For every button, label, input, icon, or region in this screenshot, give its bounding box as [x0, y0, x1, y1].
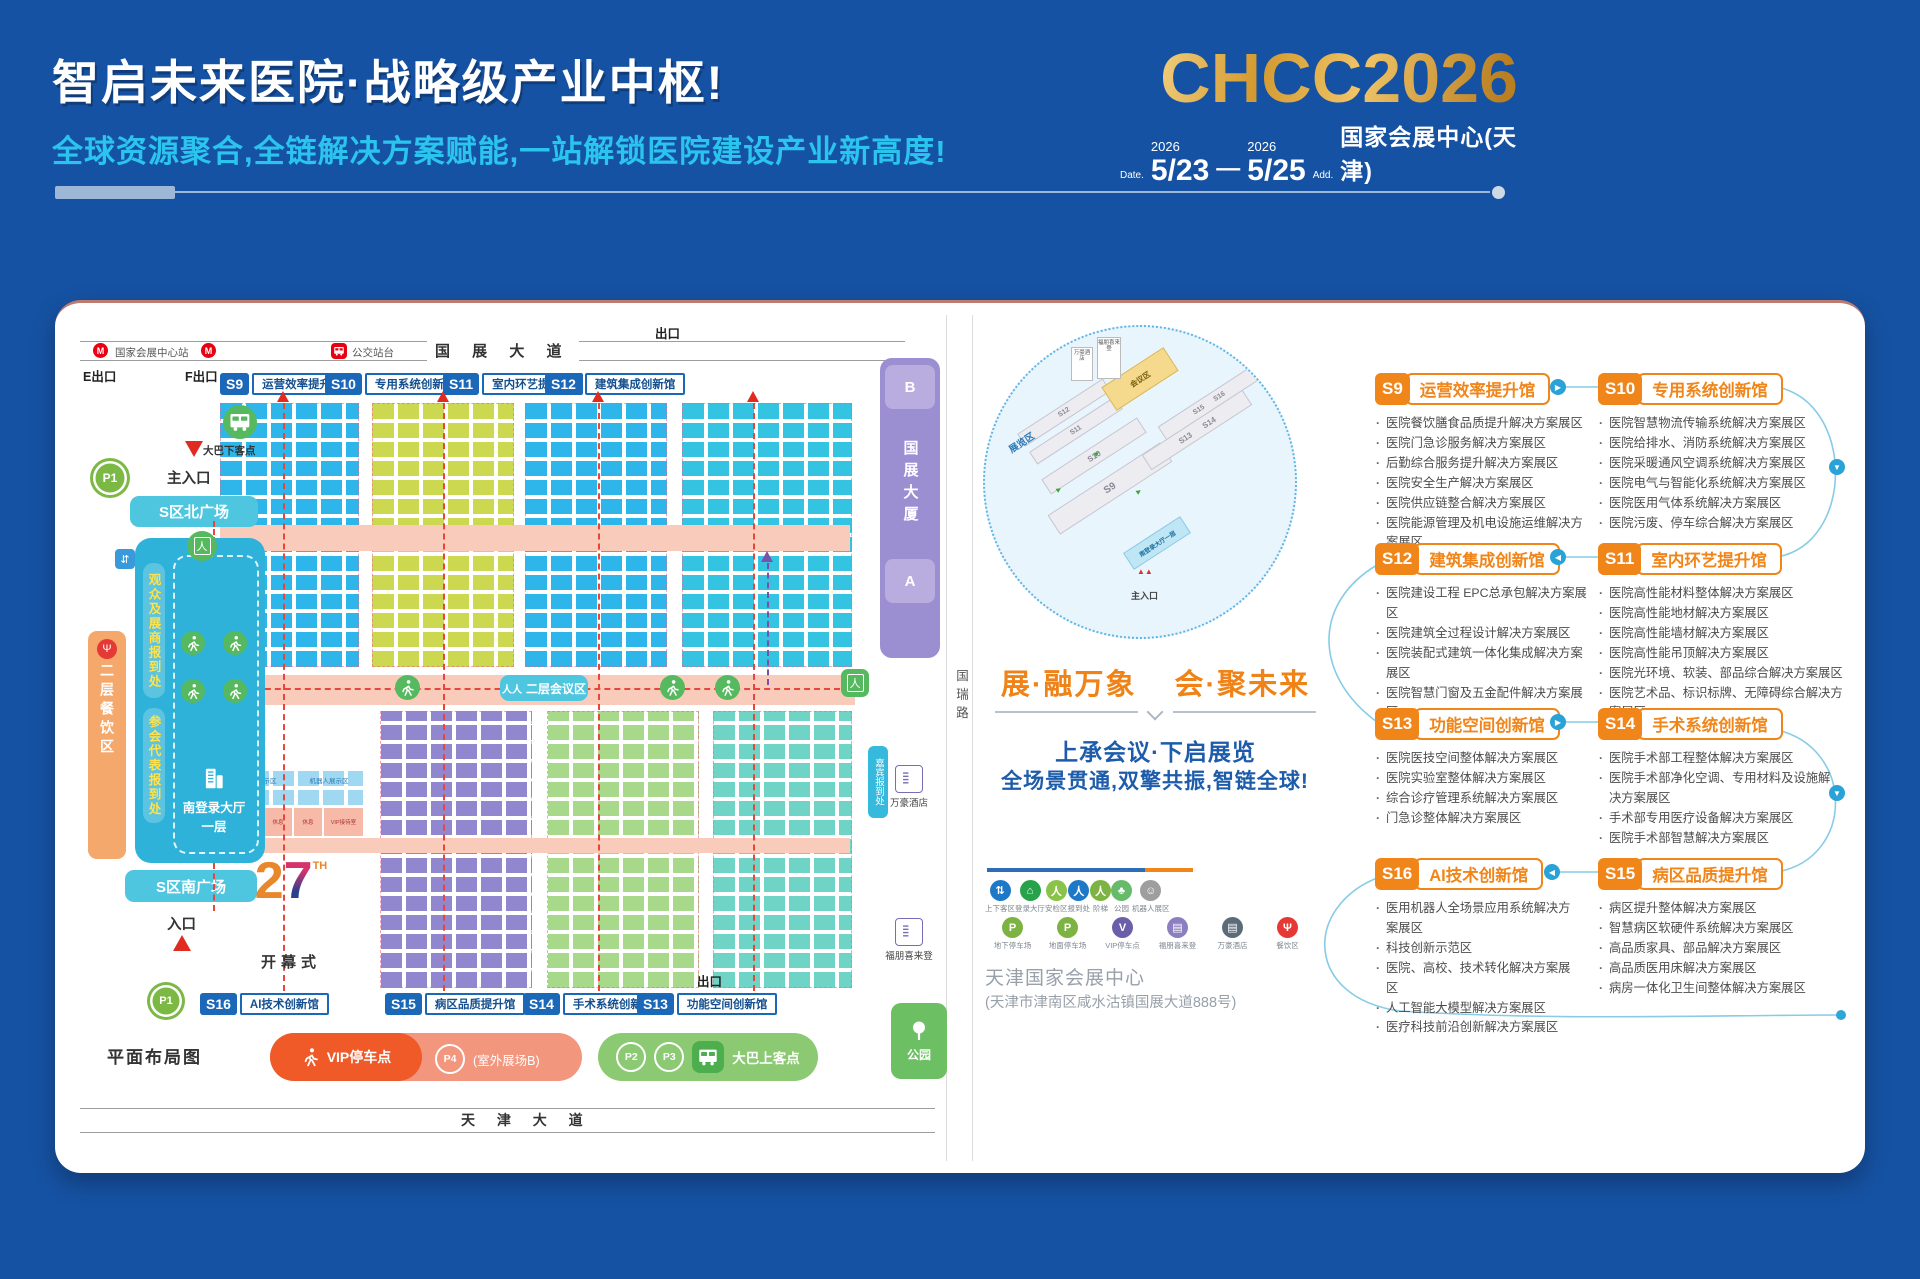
section-item: 医院医用气体系统解决方案展区 — [1598, 494, 1848, 514]
section-item: 医院手术部工程整体解决方案展区 — [1598, 749, 1833, 769]
section-item: 科技创新示范区 — [1375, 939, 1580, 959]
section-item: 智慧病区软硬件系统解决方案展区 — [1598, 919, 1848, 939]
connector-arrow-right-icon: ▶ — [1550, 714, 1566, 730]
year-end: 2026 — [1247, 140, 1305, 153]
section-item: 医院实验室整体解决方案展区 — [1375, 769, 1585, 789]
section-item: 高品质医用床解决方案展区 — [1598, 959, 1848, 979]
section-s14: S14手术系统创新馆 医院手术部工程整体解决方案展区医院手术部净化空调、专用材料… — [1598, 708, 1833, 849]
section-s15: S15病区品质提升馆 病区提升整体解决方案展区智慧病区软硬件系统解决方案展区高品… — [1598, 858, 1848, 999]
connector-arrow-right-icon: ▶ — [1550, 379, 1566, 395]
year-start: 2026 — [1151, 140, 1209, 153]
addr-label: Add. — [1313, 170, 1334, 186]
venue-name: 国家会展中心(天津) — [1340, 118, 1520, 186]
page-title: 智启未来医院·战略级产业中枢! — [52, 44, 724, 113]
chcc-logo: CHCC2026 — [1120, 38, 1518, 118]
section-item: 医院门急诊服务解决方案展区 — [1375, 434, 1585, 454]
section-item: 医用机器人全场景应用系统解决方案展区 — [1375, 899, 1580, 939]
section-s11: S11室内环艺提升馆 医院高性能材料整体解决方案展区医院高性能地材解决方案展区医… — [1598, 543, 1848, 723]
divider-line — [55, 191, 1490, 193]
section-item: 医院手术部净化空调、专用材料及设施解决方案展区 — [1598, 769, 1833, 809]
event-dates: Date. 20265/23 — 20265/25 Add. 国家会展中心(天津… — [1120, 118, 1520, 186]
page-subtitle: 全球资源聚合,全链解决方案赋能,一站解锁医院建设产业新高度! — [52, 126, 947, 171]
section-connectors — [55, 303, 1865, 1173]
date-end: 5/25 — [1247, 156, 1305, 186]
section-item: 手术部专用医疗设备解决方案展区 — [1598, 809, 1833, 829]
section-item: 综合诊疗管理系统解决方案展区 — [1375, 789, 1585, 809]
connector-arrow-down-icon: ▼ — [1829, 785, 1845, 801]
section-item: 医院建筑全过程设计解决方案展区 — [1375, 624, 1590, 644]
poster-page: 智启未来医院·战略级产业中枢! 全球资源聚合,全链解决方案赋能,一站解锁医院建设… — [0, 0, 1920, 1279]
section-item: 医院污废、停车综合解决方案展区 — [1598, 514, 1848, 534]
section-s12: S12建筑集成创新馆 医院建设工程 EPC总承包解决方案展区医院建筑全过程设计解… — [1375, 543, 1590, 723]
section-s9: S9运营效率提升馆 医院餐饮膳食品质提升解决方案展区医院门急诊服务解决方案展区后… — [1375, 373, 1585, 553]
section-item: 医院装配式建筑一体化集成解决方案展区 — [1375, 644, 1590, 684]
section-item: 医院采暖通风空调系统解决方案展区 — [1598, 454, 1848, 474]
section-item: 医院高性能地材解决方案展区 — [1598, 604, 1848, 624]
section-item: 高品质家具、部品解决方案展区 — [1598, 939, 1848, 959]
section-item: 医院高性能材料整体解决方案展区 — [1598, 584, 1848, 604]
date-start: 5/23 — [1151, 156, 1209, 186]
section-item: 医院给排水、消防系统解决方案展区 — [1598, 434, 1848, 454]
section-item: 医院光环境、软装、部品综合解决方案展区 — [1598, 664, 1848, 684]
connector-arrow-left-icon: ◀ — [1550, 549, 1566, 565]
date-label: Date. — [1120, 170, 1144, 186]
section-item: 医院安全生产解决方案展区 — [1375, 474, 1585, 494]
section-item: 医院高性能吊顶解决方案展区 — [1598, 644, 1848, 664]
date-dash: — — [1216, 155, 1240, 186]
floorplan-board: 国瑞路 M 国家会展中心站 M 公交站台 国 展 大 道 E出口 F出口 出口 … — [55, 300, 1865, 1173]
section-s16: S16AI技术创新馆 医用机器人全场景应用系统解决方案展区科技创新示范区医院、高… — [1375, 858, 1580, 1038]
section-item: 人工智能大模型解决方案展区 — [1375, 999, 1580, 1019]
section-item: 病区提升整体解决方案展区 — [1598, 899, 1848, 919]
section-item: 门急诊整体解决方案展区 — [1375, 809, 1585, 829]
section-s10: S10专用系统创新馆 医院智慧物流传输系统解决方案展区医院给排水、消防系统解决方… — [1598, 373, 1848, 533]
divider-dot — [1492, 186, 1505, 199]
section-item: 医院、高校、技术转化解决方案展区 — [1375, 959, 1580, 999]
section-item: 病房一体化卫生间整体解决方案展区 — [1598, 979, 1848, 999]
section-item: 医院电气与智能化系统解决方案展区 — [1598, 474, 1848, 494]
section-item: 后勤综合服务提升解决方案展区 — [1375, 454, 1585, 474]
section-item: 医院供应链整合解决方案展区 — [1375, 494, 1585, 514]
section-item: 医院智慧物流传输系统解决方案展区 — [1598, 414, 1848, 434]
connector-arrow-down-icon: ▼ — [1829, 459, 1845, 475]
section-item: 医院建设工程 EPC总承包解决方案展区 — [1375, 584, 1590, 624]
security-gate-icon: 人 — [187, 531, 217, 561]
connector-arrow-left-icon: ◀ — [1544, 864, 1560, 880]
section-item: 医院餐饮膳食品质提升解决方案展区 — [1375, 414, 1585, 434]
section-item: 医疗科技前沿创新解决方案展区 — [1375, 1018, 1580, 1038]
section-item: 医院医技空间整体解决方案展区 — [1375, 749, 1585, 769]
section-item: 医院手术部智慧解决方案展区 — [1598, 829, 1833, 849]
section-item: 医院高性能墙材解决方案展区 — [1598, 624, 1848, 644]
